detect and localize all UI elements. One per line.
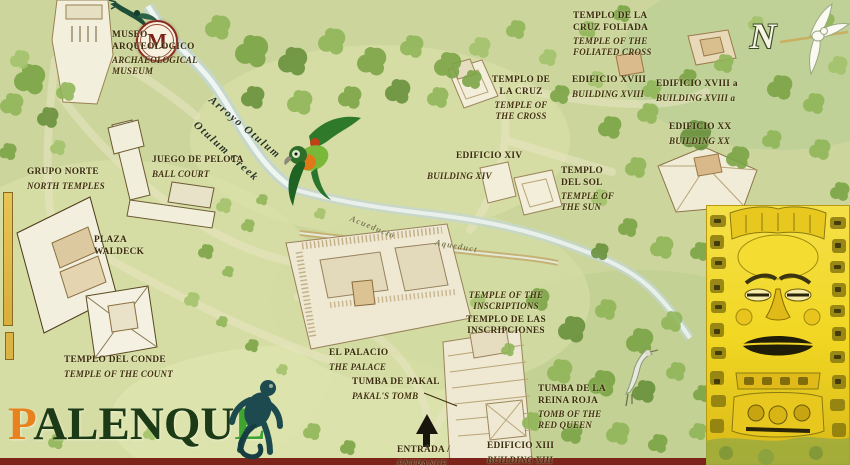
egret-icon (616, 346, 660, 410)
left-road-bar (3, 192, 13, 326)
palenque-map: N M (0, 0, 850, 465)
title-letter: ALENQU (33, 398, 234, 450)
mask-relief-image (706, 205, 850, 465)
compass-north-letter: N (750, 18, 776, 54)
museum-badge: M (136, 20, 178, 62)
quetzal-compass-icon (780, 2, 850, 76)
parrot-icon (265, 110, 365, 210)
monkey-icon (222, 374, 292, 460)
left-road-bar-2 (5, 332, 14, 360)
museum-badge-letter: M (140, 24, 174, 58)
compass-rose: N (742, 2, 850, 80)
title-letter: P (8, 398, 33, 450)
